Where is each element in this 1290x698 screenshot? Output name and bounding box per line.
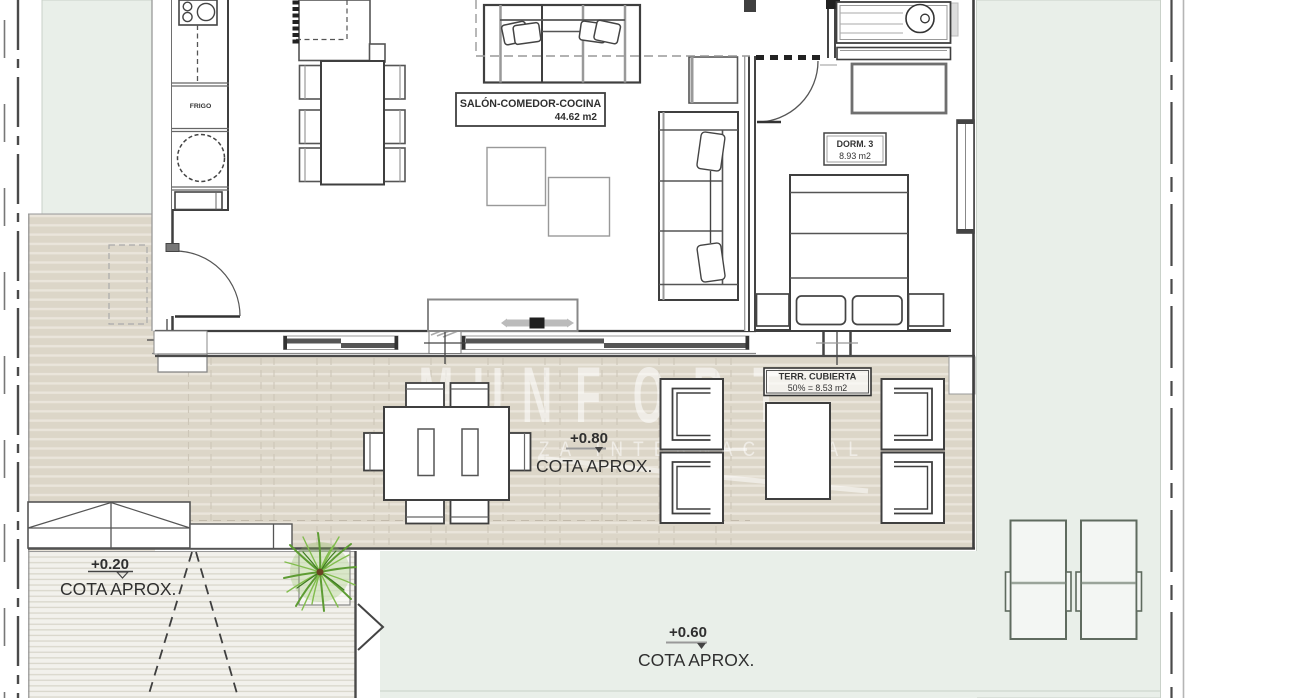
svg-text:8.93 m2: 8.93 m2	[839, 151, 871, 161]
svg-text:+0.60: +0.60	[669, 624, 707, 641]
svg-text:+0.80: +0.80	[570, 430, 608, 447]
svg-text:TERR. CUBIERTA: TERR. CUBIERTA	[779, 372, 857, 382]
svg-text:COTA APROX.: COTA APROX.	[60, 579, 176, 599]
svg-text:50% = 8.53 m2: 50% = 8.53 m2	[788, 383, 848, 393]
svg-text:FRIGO: FRIGO	[190, 103, 212, 110]
svg-text:COTA APROX.: COTA APROX.	[638, 650, 754, 670]
svg-text:44.62 m2: 44.62 m2	[555, 112, 598, 123]
svg-text:SALÓN-COMEDOR-COCINA: SALÓN-COMEDOR-COCINA	[460, 97, 602, 110]
svg-text:N: N	[522, 352, 552, 439]
svg-text:COTA APROX.: COTA APROX.	[536, 456, 652, 476]
svg-text:DORM. 3: DORM. 3	[837, 139, 874, 149]
svg-text:F: F	[575, 352, 601, 439]
svg-text:+0.20: +0.20	[91, 556, 129, 573]
